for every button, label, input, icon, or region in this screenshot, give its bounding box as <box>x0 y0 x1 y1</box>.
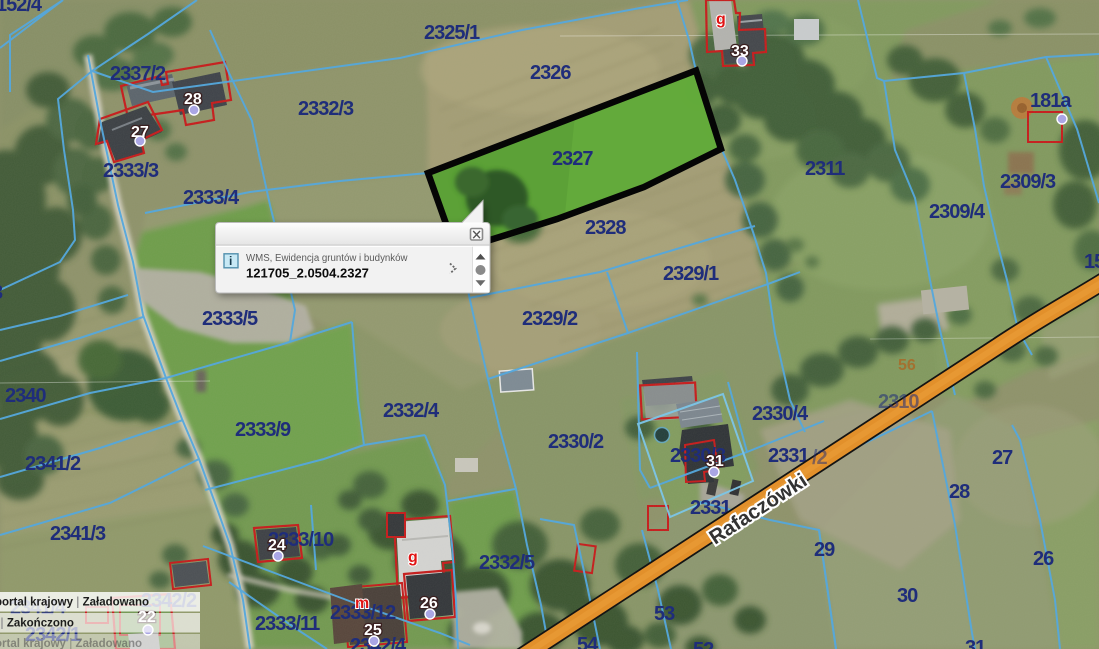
svg-text:2309/3: 2309/3 <box>1000 171 1056 193</box>
svg-text:2309/4: 2309/4 <box>929 201 986 223</box>
svg-text:WMS, Ewidencja gruntów i budyn: WMS, Ewidencja gruntów i budynków <box>246 253 409 264</box>
svg-text:152/4: 152/4 <box>0 0 43 16</box>
svg-text:ortal krajowy | Załadowano: ortal krajowy | Załadowano <box>0 638 142 649</box>
svg-text:2341/3: 2341/3 <box>50 523 106 545</box>
svg-text:2333/4: 2333/4 <box>183 187 240 209</box>
svg-text:2332/4: 2332/4 <box>383 400 440 422</box>
svg-text:2327: 2327 <box>552 148 593 170</box>
svg-text:/2: /2 <box>812 447 828 469</box>
svg-text:31: 31 <box>965 637 986 649</box>
svg-text:2325/1: 2325/1 <box>424 22 480 44</box>
svg-text:2333/3: 2333/3 <box>103 160 159 182</box>
svg-text:2333/5: 2333/5 <box>202 308 258 330</box>
svg-text:2328: 2328 <box>585 217 626 239</box>
svg-text:2341/2: 2341/2 <box>25 453 81 475</box>
svg-text:15: 15 <box>1084 251 1099 273</box>
svg-text:2329/1: 2329/1 <box>663 263 719 285</box>
svg-text:m: m <box>355 595 369 612</box>
svg-text:29: 29 <box>814 539 835 561</box>
svg-text:2310: 2310 <box>878 391 919 413</box>
svg-text:27: 27 <box>992 447 1013 469</box>
svg-text:2330/2: 2330/2 <box>548 431 604 453</box>
svg-text:2332/5: 2332/5 <box>479 552 535 574</box>
svg-text:26: 26 <box>1033 548 1054 570</box>
svg-text:2329/2: 2329/2 <box>522 308 578 330</box>
svg-text:52: 52 <box>693 639 714 649</box>
svg-text:2311: 2311 <box>805 158 845 180</box>
svg-text:2337/2: 2337/2 <box>110 63 166 85</box>
svg-text:53: 53 <box>654 603 675 625</box>
svg-text:2333/11: 2333/11 <box>255 613 320 635</box>
svg-text:121705_2.0504.2327: 121705_2.0504.2327 <box>246 266 369 281</box>
svg-text:2333/9: 2333/9 <box>235 419 291 441</box>
svg-text:30: 30 <box>897 585 918 607</box>
svg-text:portal krajowy | Załadowano: portal krajowy | Załadowano <box>0 597 149 609</box>
svg-text:m | Zakończono: m | Zakończono <box>0 618 74 630</box>
svg-text:g: g <box>716 11 726 28</box>
svg-text:i: i <box>229 254 232 268</box>
svg-text:g: g <box>408 549 418 566</box>
svg-text:56: 56 <box>898 357 916 374</box>
svg-text:2326: 2326 <box>530 62 571 84</box>
svg-text:181a: 181a <box>1030 90 1072 112</box>
svg-text:2340: 2340 <box>5 385 46 407</box>
svg-text:2332/3: 2332/3 <box>298 98 354 120</box>
svg-text:28: 28 <box>949 481 970 503</box>
svg-text:2330/4: 2330/4 <box>752 403 809 425</box>
svg-text:54: 54 <box>577 634 599 649</box>
